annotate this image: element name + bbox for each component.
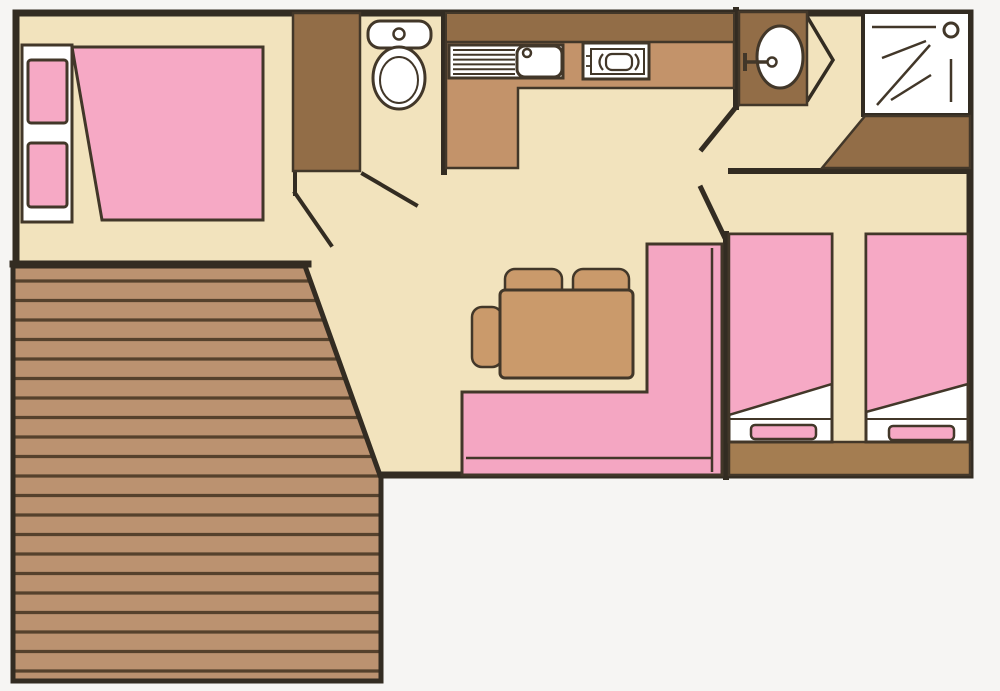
pillow	[889, 426, 954, 440]
single-bed-right	[866, 234, 968, 442]
deck-terrace	[13, 266, 381, 681]
washbasin	[757, 26, 803, 88]
kitchen-upper-cabinets	[446, 13, 734, 42]
bed-duvet	[866, 234, 968, 412]
pillow	[28, 60, 67, 123]
washroom	[739, 12, 807, 105]
toilet-room	[368, 21, 431, 109]
pillow	[28, 143, 67, 207]
double-bed-duvet	[72, 47, 263, 220]
bed-duvet	[729, 234, 832, 415]
wardrobe	[293, 13, 360, 171]
floorplan-canvas	[0, 0, 1000, 691]
storage-chest	[729, 442, 970, 475]
sink-faucet	[523, 49, 531, 57]
floorplan-drawing	[0, 0, 1000, 691]
single-bed-left	[729, 234, 832, 442]
burner	[606, 54, 632, 70]
toilet-flush-button	[394, 29, 405, 40]
hob	[583, 43, 649, 79]
dining-table	[500, 290, 633, 378]
tap-head	[768, 58, 777, 67]
pillow	[751, 425, 816, 439]
chair	[472, 307, 502, 367]
